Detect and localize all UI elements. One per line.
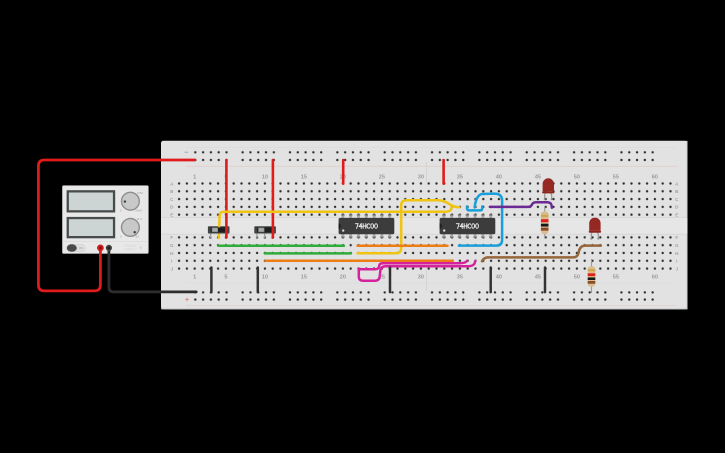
svg-text:50: 50 — [574, 174, 580, 180]
svg-text:F: F — [675, 235, 678, 240]
svg-text:30: 30 — [418, 275, 424, 281]
svg-text:SUPPLY: SUPPLY — [125, 247, 138, 251]
svg-text:35: 35 — [457, 275, 463, 281]
svg-text:O/M: O/M — [137, 191, 143, 195]
svg-text:10: 10 — [262, 174, 268, 180]
svg-text:25: 25 — [379, 174, 385, 180]
svg-text:ON: ON — [79, 246, 83, 250]
svg-text:55: 55 — [613, 174, 619, 180]
svg-text:J: J — [676, 266, 679, 271]
svg-text:45: 45 — [535, 174, 541, 180]
svg-text:50: 50 — [574, 275, 580, 281]
svg-text:G: G — [675, 243, 679, 248]
svg-text:I: I — [676, 259, 677, 264]
svg-text:I: I — [171, 259, 172, 264]
svg-text:15: 15 — [301, 174, 307, 180]
svg-text:G: G — [170, 243, 174, 248]
svg-text:40: 40 — [496, 174, 502, 180]
svg-text:E: E — [675, 213, 678, 218]
svg-text:45: 45 — [535, 275, 541, 281]
svg-text:40: 40 — [496, 275, 502, 281]
svg-text:15: 15 — [301, 275, 307, 281]
svg-text:1: 1 — [193, 275, 196, 281]
svg-text:35: 35 — [457, 174, 463, 180]
svg-text:D-C: D-C — [137, 217, 143, 221]
svg-text:MAX: MAX — [136, 209, 143, 213]
svg-text:55: 55 — [613, 275, 619, 281]
svg-text:J: J — [171, 266, 174, 271]
svg-text:60: 60 — [652, 174, 658, 180]
svg-text:5A: 5A — [136, 235, 140, 239]
svg-text:30: 30 — [418, 174, 424, 180]
svg-text:60: 60 — [652, 275, 658, 281]
svg-text:10: 10 — [262, 275, 268, 281]
svg-text:1: 1 — [193, 174, 196, 180]
svg-text:20: 20 — [340, 275, 346, 281]
svg-text:5: 5 — [224, 275, 227, 281]
svg-text:F: F — [170, 235, 173, 240]
svg-text:E: E — [170, 213, 173, 218]
